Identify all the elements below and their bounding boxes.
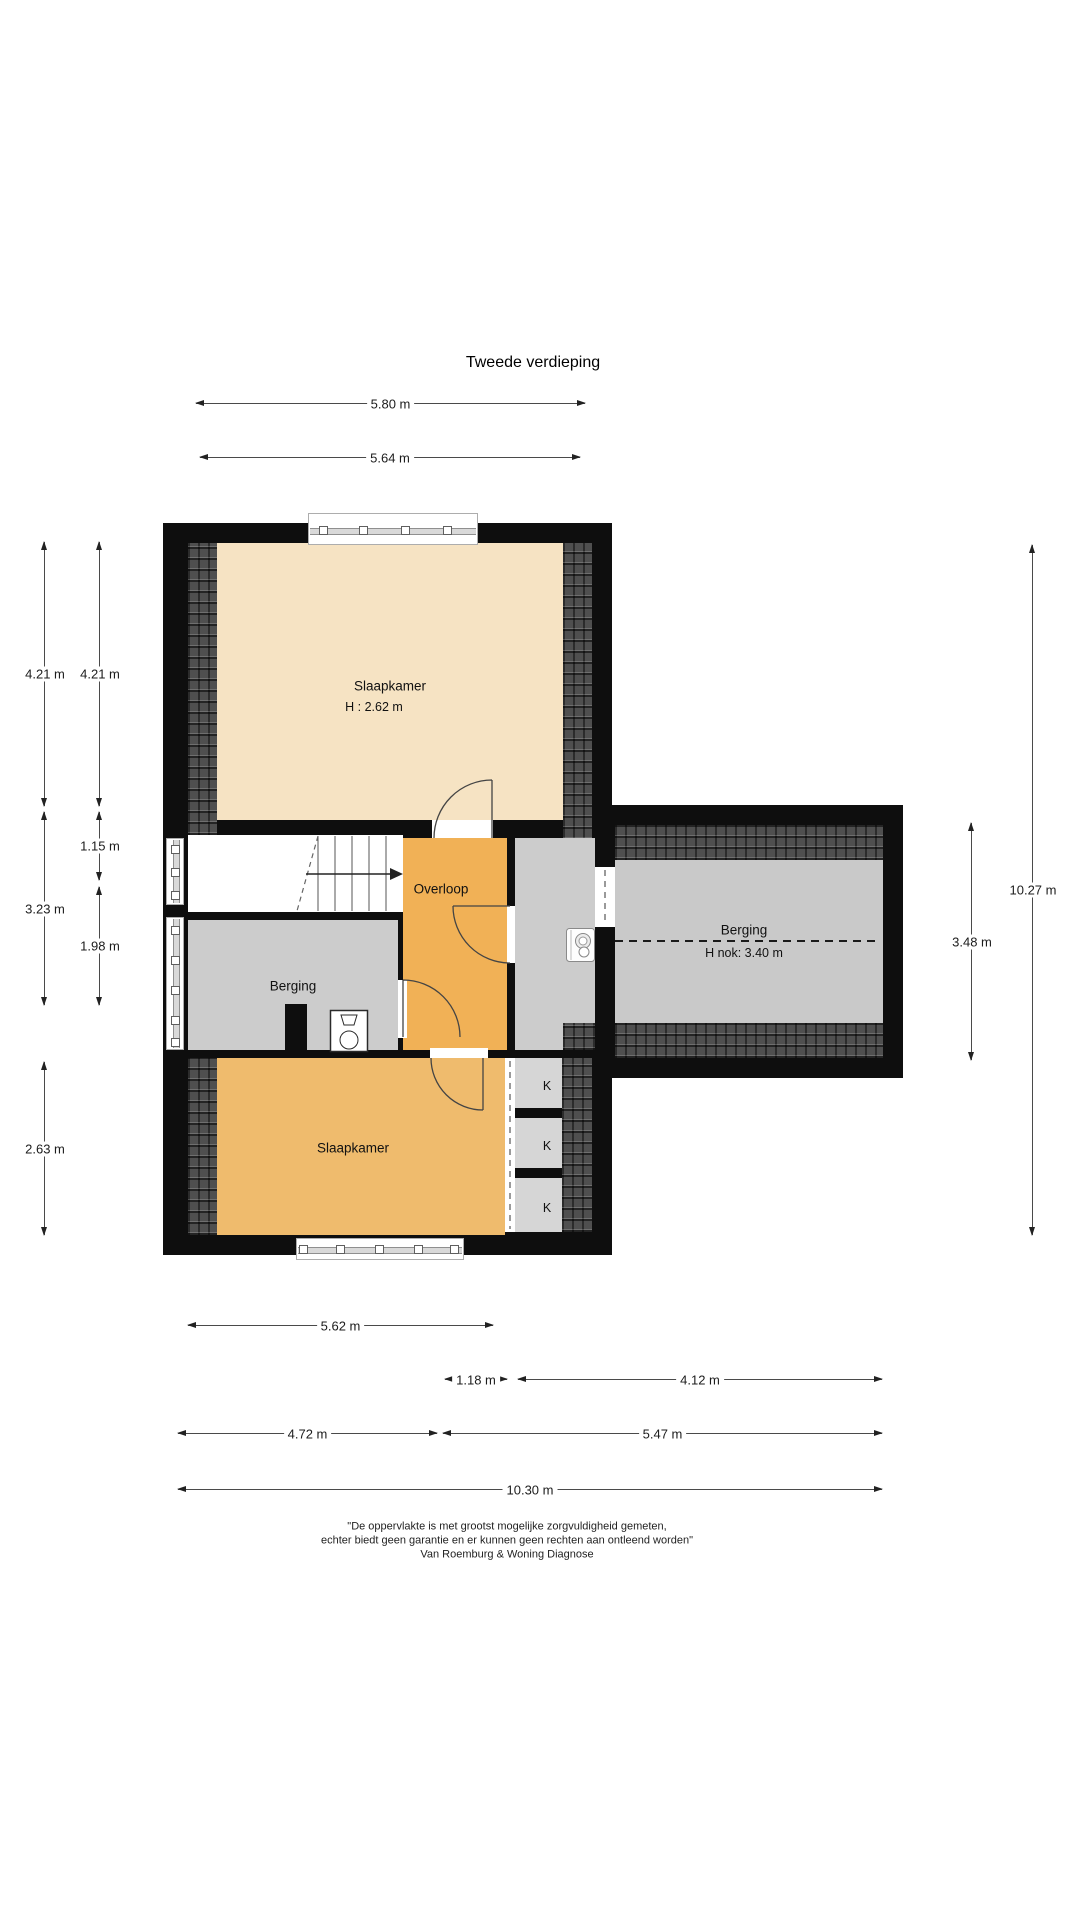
dimension-arrowhead (874, 1376, 883, 1382)
dimension-4-12-m: 4.12 m (518, 1379, 882, 1380)
dimension-arrowhead (442, 1430, 451, 1436)
dimension-label: 4.12 m (676, 1373, 724, 1388)
dimension-10-30-m: 10.30 m (178, 1489, 882, 1490)
dimension-arrowhead (577, 400, 586, 406)
dimension-label: 10.30 m (503, 1483, 558, 1498)
dimension-arrowhead (874, 1430, 883, 1436)
dimension-5-80-m: 5.80 m (196, 403, 585, 404)
dimension-arrowhead (96, 798, 102, 807)
dimension-arrowhead (874, 1486, 883, 1492)
dimension-arrowhead (1029, 544, 1035, 553)
dimension-arrowhead (485, 1322, 494, 1328)
disclaimer-line-2: echter biedt geen garantie en er kunnen … (321, 1534, 693, 1548)
dimension-3-23-m: 3.23 m (44, 812, 45, 1005)
dimension-arrowhead (96, 541, 102, 550)
dimension-arrowhead (41, 1227, 47, 1236)
dimension-label: 5.80 m (367, 397, 415, 412)
dimension-4-72-m: 4.72 m (178, 1433, 437, 1434)
dimension-arrowhead (199, 454, 208, 460)
dimension-arrowhead (96, 811, 102, 820)
dimension-arrowhead (96, 872, 102, 881)
dimension-arrowhead (195, 400, 204, 406)
dimension-arrowhead (572, 454, 581, 460)
dimension-arrowhead (41, 798, 47, 807)
dimension-arrowhead (968, 822, 974, 831)
dimension-2-63-m: 2.63 m (44, 1062, 45, 1235)
dimension-label: 5.64 m (366, 451, 414, 466)
dimension-label: 1.15 m (76, 839, 124, 854)
dimension-label: 3.23 m (21, 901, 69, 916)
dimension-arrowhead (41, 811, 47, 820)
dimension-arrowhead (41, 997, 47, 1006)
dimension-5-62-m: 5.62 m (188, 1325, 493, 1326)
dimension-arrowhead (517, 1376, 526, 1382)
dimension-4-21-m: 4.21 m (44, 542, 45, 806)
dimension-arrowhead (177, 1486, 186, 1492)
dimension-arrowhead (177, 1430, 186, 1436)
dimensions-layer: 5.80 m5.64 m4.21 m4.21 m1.15 m3.23 m1.98… (0, 0, 1080, 1920)
dimension-arrowhead (187, 1322, 196, 1328)
dimension-label: 1.98 m (76, 939, 124, 954)
dimension-10-27-m: 10.27 m (1032, 545, 1033, 1235)
dimension-arrowhead (96, 997, 102, 1006)
disclaimer-line-3: Van Roemburg & Woning Diagnose (321, 1548, 693, 1562)
dimension-5-47-m: 5.47 m (443, 1433, 882, 1434)
dimension-arrowhead (429, 1430, 438, 1436)
dimension-arrowhead (96, 886, 102, 895)
dimension-label: 10.27 m (1006, 883, 1061, 898)
dimension-label: 4.21 m (76, 667, 124, 682)
dimension-3-48-m: 3.48 m (971, 823, 972, 1060)
dimension-4-21-m: 4.21 m (99, 542, 100, 806)
dimension-label: 1.18 m (452, 1373, 500, 1388)
dimension-label: 4.21 m (21, 667, 69, 682)
dimension-arrowhead (499, 1376, 508, 1382)
dimension-label: 5.47 m (639, 1427, 687, 1442)
dimension-1-98-m: 1.98 m (99, 887, 100, 1005)
dimension-arrowhead (1029, 1227, 1035, 1236)
dimension-label: 4.72 m (284, 1427, 332, 1442)
dimension-label: 5.62 m (317, 1319, 365, 1334)
dimension-5-64-m: 5.64 m (200, 457, 580, 458)
dimension-arrowhead (41, 541, 47, 550)
dimension-1-18-m: 1.18 m (445, 1379, 507, 1380)
dimension-arrowhead (968, 1052, 974, 1061)
disclaimer: "De oppervlakte is met grootst mogelijke… (321, 1520, 693, 1561)
disclaimer-line-1: "De oppervlakte is met grootst mogelijke… (321, 1520, 693, 1534)
dimension-1-15-m: 1.15 m (99, 812, 100, 880)
dimension-label: 3.48 m (948, 934, 996, 949)
dimension-label: 2.63 m (21, 1141, 69, 1156)
dimension-arrowhead (41, 1061, 47, 1070)
